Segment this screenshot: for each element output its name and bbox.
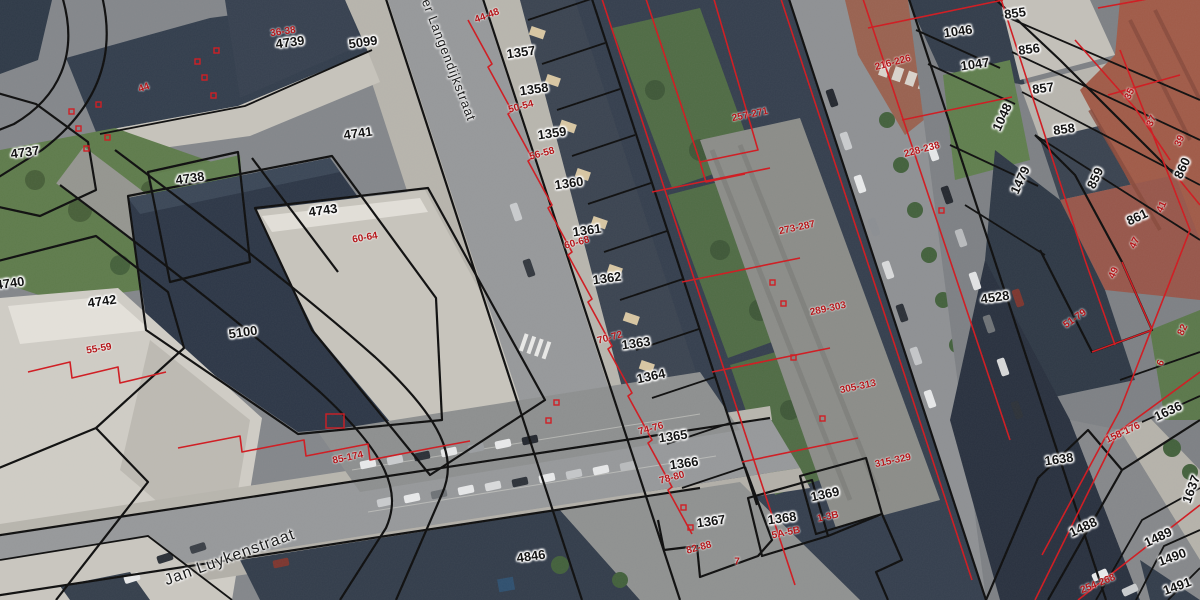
map-viewport[interactable]: er LangendijkstraatJan Luykenstraat50994… — [0, 0, 1200, 600]
imagery-grain-overlay — [0, 0, 1200, 600]
aerial-map-canvas — [0, 0, 1200, 600]
